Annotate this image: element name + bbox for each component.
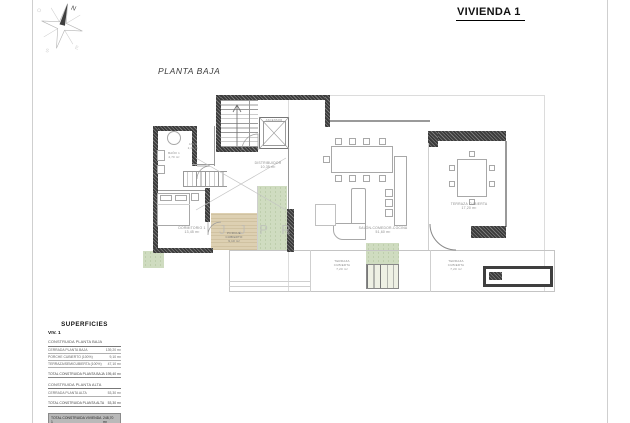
room-area: 17,20 m² <box>450 206 488 210</box>
superficies-title: SUPERFICIES <box>48 321 121 328</box>
row-label: TERRAZA/SEMICUBIERTA (100%) <box>48 362 102 366</box>
row-value: 195,40 m² <box>106 372 121 376</box>
section-header-planta-alta: CONSTRUIDA PLANTA ALTA <box>48 378 121 389</box>
section-header-planta-baja: CONSTRUIDA PLANTA BAJA <box>48 336 121 347</box>
watermark: J J P R <box>219 222 296 237</box>
row-label: TOTAL CONSTRUIDA PLANTA ALTA <box>48 401 104 405</box>
row-value: 139,20 m² <box>106 348 121 352</box>
row-value: 9,10 m² <box>110 355 122 359</box>
room-name: DORMITORIO 1 <box>178 226 205 230</box>
room-area: 51,60 m² <box>355 230 411 234</box>
row-label: CERRADA PLANTA BAJA <box>48 348 88 352</box>
row-value: 53,30 m² <box>108 391 121 395</box>
total-row-planta-alta: TOTAL CONSTRUIDA PLANTA ALTA 53,30 m² <box>48 399 121 407</box>
room-label-aseo: ASEO 2,40 m² <box>183 143 203 150</box>
table-row: PORCHE CUBIERTO (100%) 9,10 m² <box>48 354 121 361</box>
room-name: SALÓN-COMEDOR-COCINA <box>359 226 408 230</box>
row-value: 53,30 m² <box>108 401 121 405</box>
room-label-dormitorio1: DORMITORIO 1 13,45 m² <box>172 226 212 235</box>
stair-direction-arrow <box>233 105 241 146</box>
row-label: TOTAL CONSTRUIDA PLANTA BAJA <box>48 372 105 376</box>
total-row-planta-baja: TOTAL CONSTRUIDA PLANTA BAJA 195,40 m² <box>48 371 121 379</box>
room-label-terraza-2: TERRAZA CUBIERTA 7,20 m² <box>440 260 472 272</box>
room-area: 13,45 m² <box>172 230 212 234</box>
row-value: 248,70 m² <box>103 416 118 423</box>
door-arc-entry <box>242 134 258 150</box>
room-name: TERRAZA CUBIERTA <box>451 202 488 206</box>
door-arc-bath <box>197 166 210 179</box>
row-label: PORCHE CUBIERTO (100%) <box>48 355 93 359</box>
drawing-sheet: N O S E VIVIENDA 1 PLANTA BAJA ASCENSOR <box>0 0 630 423</box>
room-name: TERRAZA CUBIERTA <box>448 259 465 267</box>
row-label: CERRADA PLANTA ALTA <box>48 391 87 395</box>
room-area: 10,35 m² <box>246 165 290 169</box>
curved-garden-wall <box>430 224 456 250</box>
room-name: ASEO <box>189 143 197 146</box>
room-label-terraza-grande: TERRAZA CUBIERTA 17,20 m² <box>450 202 488 211</box>
table-row: CERRADA PLANTA BAJA 139,20 m² <box>48 347 121 354</box>
room-label-salon: SALÓN-COMEDOR-COCINA 51,60 m² <box>355 226 411 235</box>
elevator-cross <box>259 117 289 149</box>
room-area: 2,40 m² <box>183 147 203 151</box>
room-area: 7,20 m² <box>326 268 358 272</box>
room-label-bano: BAÑO 1 4,70 m² <box>160 152 188 160</box>
superficies-table: SUPERFICIES VIV. 1 CONSTRUIDA PLANTA BAJ… <box>48 321 121 423</box>
row-value: 47,10 m² <box>108 362 121 366</box>
room-area: 4,70 m² <box>160 156 188 160</box>
table-row: TERRAZA/SEMICUBIERTA (100%) 47,10 m² <box>48 361 121 368</box>
room-area: 9,10 m² <box>221 240 247 244</box>
grand-total-row: TOTAL CONSTRUIDA VIVIENDA 1 248,70 m² <box>48 413 121 423</box>
room-area: 7,20 m² <box>440 268 472 272</box>
room-name: DISTRIBUIDOR <box>255 161 282 165</box>
room-label-terraza-1: TERRAZA CUBIERTA 7,20 m² <box>326 260 358 272</box>
table-row: CERRADA PLANTA ALTA 53,30 m² <box>48 389 121 396</box>
room-name: TERRAZA CUBIERTA <box>334 259 351 267</box>
row-label: TOTAL CONSTRUIDA VIVIENDA 1 <box>51 416 103 423</box>
room-label-distribuidor: DISTRIBUIDOR 10,35 m² <box>246 161 290 170</box>
